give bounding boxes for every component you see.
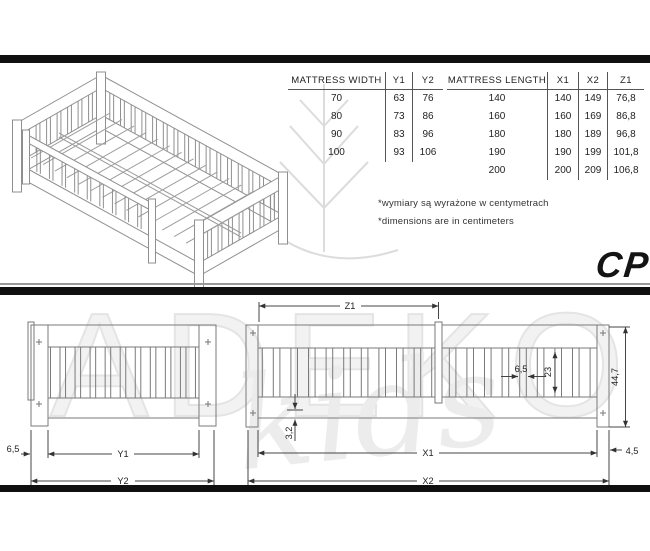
- mattress-width-table: MATTRESS WIDTHY1Y27063768073869083961009…: [288, 72, 443, 162]
- table-cell: 96,8: [607, 126, 644, 144]
- column-header: Y2: [412, 72, 443, 90]
- table-cell: 199: [578, 144, 607, 162]
- table-cell: 76: [412, 90, 443, 108]
- table-cell: 83: [385, 126, 412, 144]
- table-cell: 70: [288, 90, 385, 108]
- table-cell: 86,8: [607, 108, 644, 126]
- bed-wireframe: [13, 72, 288, 288]
- table-cell: 100: [288, 144, 385, 162]
- table-cell: 169: [578, 108, 607, 126]
- dim-slat-spacing-label: 6,5: [515, 364, 528, 374]
- spec-sheet: ADEKO kids MATTRESS WIDTHY1Y270637680738…: [0, 0, 650, 551]
- unit-notes: *wymiary są wyrażone w centymetrach *dim…: [378, 194, 549, 230]
- dim-rail-lip-label: 3,2: [284, 427, 294, 440]
- table-cell: 140: [447, 90, 547, 108]
- dim-x1-label: X1: [422, 448, 433, 458]
- table-cell: 190: [547, 144, 578, 162]
- table-cell: 96: [412, 126, 443, 144]
- mattress-length-table: MATTRESS LENGTHX1X2Z114014014976,8160160…: [447, 72, 644, 180]
- column-header: X2: [578, 72, 607, 90]
- note-english: *dimensions are in centimeters: [378, 212, 549, 230]
- column-header: MATTRESS WIDTH: [288, 72, 385, 90]
- end-view-drawing: 6,5 Y1 Y2: [0, 295, 245, 495]
- note-polish: *wymiary są wyrażone w centymetrach: [378, 194, 549, 212]
- bed-isometric-drawing: [0, 60, 300, 292]
- table-cell: 149: [578, 90, 607, 108]
- table-cell: 63: [385, 90, 412, 108]
- dim-y1-label: Y1: [117, 449, 128, 459]
- end-view-frame: [28, 322, 216, 426]
- dim-slat-height-label: 23: [543, 367, 553, 377]
- screw-marks: [36, 339, 211, 407]
- table-cell: 180: [547, 126, 578, 144]
- table-cell: 200: [547, 162, 578, 180]
- table-cell: 200: [447, 162, 547, 180]
- table-cell: 90: [288, 126, 385, 144]
- dim-post-width-label: 4,5: [626, 446, 639, 456]
- table-cell: 73: [385, 108, 412, 126]
- table-cell: 189: [578, 126, 607, 144]
- top-divider-bar: [0, 55, 650, 63]
- dim-z1-label: Z1: [345, 301, 356, 311]
- table-cell: 190: [447, 144, 547, 162]
- table-cell: 93: [385, 144, 412, 162]
- table-cell: 140: [547, 90, 578, 108]
- middle-divider-bar: [0, 287, 650, 295]
- column-header: Z1: [607, 72, 644, 90]
- column-header: MATTRESS LENGTH: [447, 72, 547, 90]
- table-cell: 86: [412, 108, 443, 126]
- column-header: X1: [547, 72, 578, 90]
- side-view-slats: [262, 348, 590, 397]
- table-cell: 180: [447, 126, 547, 144]
- table-cell: 209: [578, 162, 607, 180]
- barrier-end-post: [435, 322, 442, 403]
- side-view-drawing: Z1 6,5 23 44,7 3,2 X1 4,5: [240, 295, 650, 495]
- table-cell: 106,8: [607, 162, 644, 180]
- bottom-divider-bar: [0, 485, 650, 492]
- side-view-dimensions: Z1 6,5 23 44,7 3,2 X1 4,5: [248, 301, 638, 486]
- column-header: Y1: [385, 72, 412, 90]
- model-name: CP: [594, 244, 650, 286]
- dim-total-height-label: 44,7: [610, 368, 620, 386]
- table-cell: 76,8: [607, 90, 644, 108]
- table-cell: 160: [547, 108, 578, 126]
- table-cell: 80: [288, 108, 385, 126]
- dim-post-width-label: 6,5: [7, 444, 20, 454]
- table-cell: 160: [447, 108, 547, 126]
- end-view-dimensions: 6,5 Y1 Y2: [7, 430, 214, 486]
- table-cell: 101,8: [607, 144, 644, 162]
- table-cell: 106: [412, 144, 443, 162]
- middle-divider-line: [0, 283, 650, 285]
- end-view-slats: [51, 347, 196, 398]
